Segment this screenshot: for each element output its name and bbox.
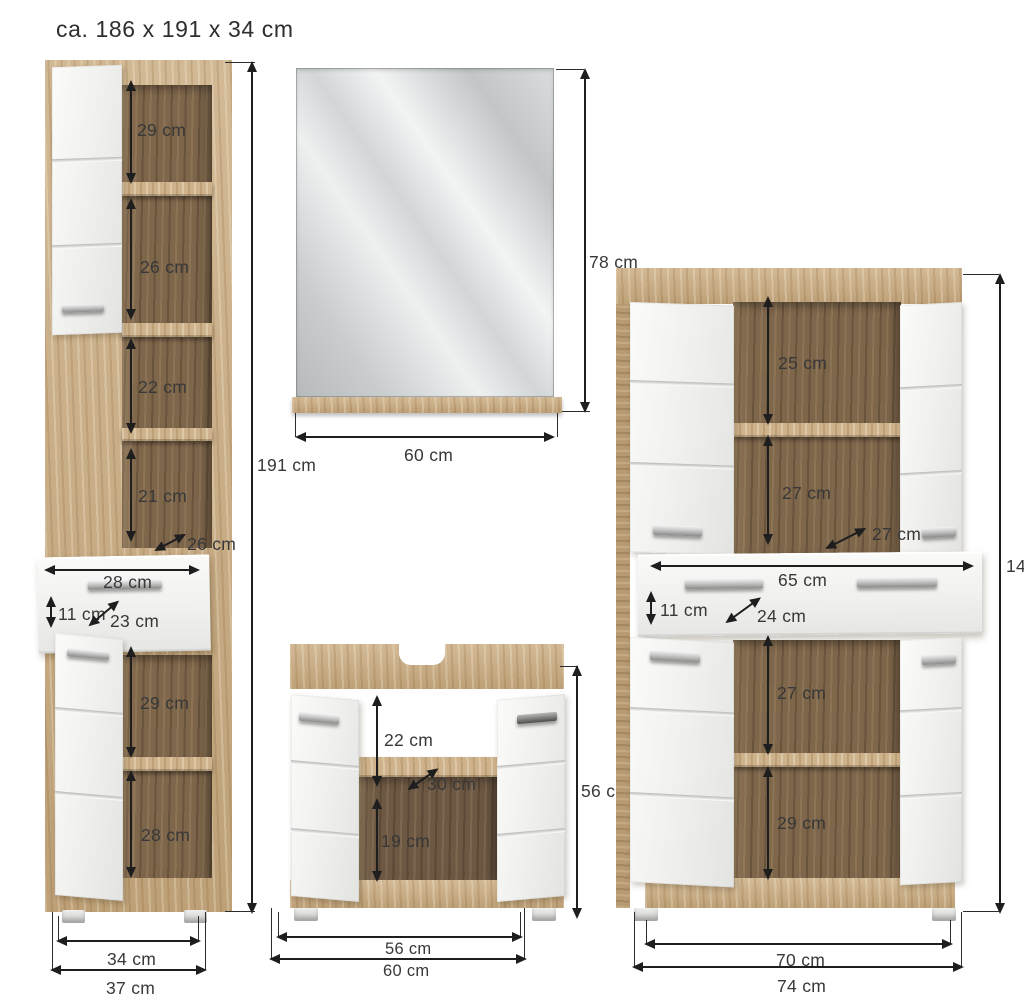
right-lower-left-door	[630, 637, 734, 887]
right-height-label: 141	[1006, 556, 1024, 576]
right-upper-right-door	[900, 302, 962, 555]
drawer-handle	[857, 577, 937, 588]
right-drawer-width-dim	[652, 565, 972, 567]
right-cabinet-group: 25 cm 27 cm 27 cm 65 cm 11 cm 24 cm 27 c…	[0, 0, 1024, 997]
door-handle	[922, 526, 956, 538]
door-groove	[900, 384, 962, 391]
cabinet-foot	[932, 908, 956, 921]
right-cabinet-shelf-1	[733, 423, 901, 437]
door-groove	[900, 792, 962, 799]
door-groove	[630, 707, 734, 716]
ext-line	[961, 912, 962, 967]
right-width-outer-dim	[634, 966, 962, 968]
right-compartment2-label: 27 cm	[782, 483, 831, 503]
right-lower1-dim	[767, 637, 769, 753]
right-drawer-height-label: 11 cm	[660, 600, 708, 620]
ext-line	[963, 274, 999, 275]
right-cabinet-side-panel	[616, 300, 630, 908]
ext-line	[963, 911, 999, 912]
door-groove	[900, 707, 962, 714]
right-lower-right-door	[900, 637, 962, 885]
door-handle	[922, 653, 956, 665]
right-drawer-depth-label: 24 cm	[757, 606, 806, 626]
right-lower2-label: 29 cm	[777, 813, 826, 833]
door-groove	[630, 380, 734, 388]
door-groove	[630, 792, 734, 801]
right-lower1-label: 27 cm	[777, 683, 826, 703]
right-cabinet-top	[616, 268, 962, 304]
door-groove	[900, 470, 962, 477]
right-width-outer-label: 74 cm	[777, 976, 826, 996]
right-depth-label: 27 cm	[872, 524, 921, 544]
right-lower2-dim	[767, 768, 769, 878]
right-compartment1-dim	[767, 298, 769, 423]
ext-line	[634, 912, 635, 967]
door-groove	[630, 462, 734, 470]
right-compartment2-dim	[767, 437, 769, 543]
right-cabinet-shelf-2	[733, 753, 901, 767]
furniture-dimension-diagram: ca. 186 x 191 x 34 cm 29 cm	[0, 0, 1024, 997]
drawer-handle	[685, 578, 763, 589]
door-handle	[650, 650, 700, 663]
right-compartment1-label: 25 cm	[778, 353, 827, 373]
right-upper-left-door	[630, 302, 734, 556]
door-handle	[653, 525, 702, 537]
right-drawer-height-dim	[650, 593, 652, 623]
right-width-inner-dim	[646, 943, 951, 945]
right-drawer-width-label: 65 cm	[778, 570, 827, 590]
right-height-dim	[999, 275, 1001, 912]
